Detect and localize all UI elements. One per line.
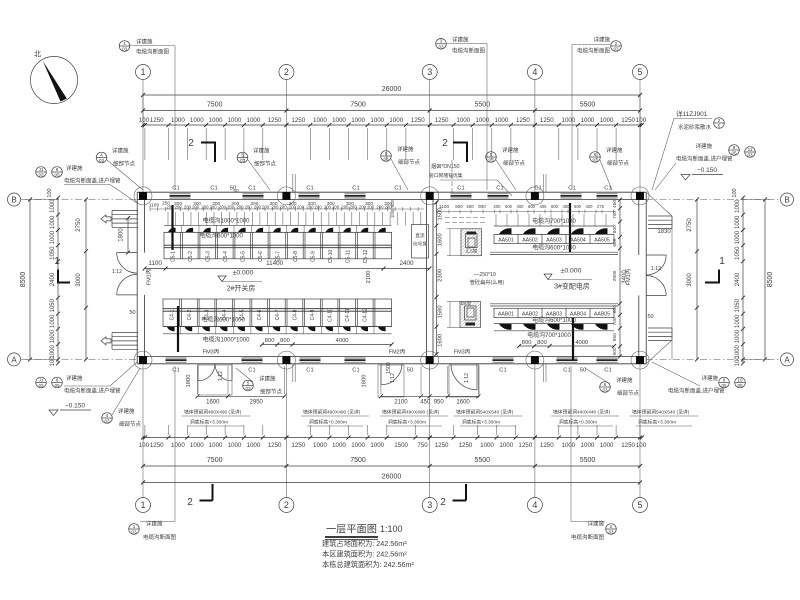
svg-text:1000: 1000: [495, 117, 509, 124]
svg-text:细部节点: 细部节点: [113, 160, 136, 168]
svg-text:烟囱*DN150: 烟囱*DN150: [431, 162, 460, 170]
svg-text:7500: 7500: [350, 102, 366, 109]
svg-text:C5-11: C5-11: [345, 250, 351, 263]
svg-text:洞底标高+3.300m: 洞底标高+3.300m: [462, 419, 500, 426]
svg-text:1: 1: [140, 67, 145, 77]
svg-text:建筑占地面积为: 242.56m²: 建筑占地面积为: 242.56m²: [322, 539, 407, 548]
svg-text:C1: C1: [248, 368, 255, 374]
svg-text:03: 03: [438, 44, 444, 49]
svg-text:05: 05: [737, 383, 743, 388]
svg-text:600: 600: [528, 204, 536, 209]
svg-text:1250: 1250: [518, 442, 532, 449]
svg-text:7500: 7500: [350, 457, 366, 464]
svg-text:详建施: 详建施: [695, 142, 712, 150]
svg-text:2900: 2900: [612, 270, 618, 281]
svg-text:1000: 1000: [581, 117, 595, 124]
svg-text:03: 03: [38, 383, 44, 388]
svg-text:05: 05: [54, 173, 60, 178]
svg-text:800: 800: [522, 340, 532, 346]
svg-text:电缆沟600*1000: 电缆沟600*1000: [532, 316, 576, 324]
svg-text:北: 北: [34, 50, 41, 58]
svg-text:1: 1: [54, 256, 60, 267]
svg-text:1:100: 1:100: [380, 524, 403, 534]
svg-text:200 200: 200 200: [289, 204, 305, 209]
svg-text:950: 950: [612, 333, 618, 341]
svg-text:电缆沟1000*1000: 电缆沟1000*1000: [202, 336, 250, 344]
svg-text:电缆沟断面图: 电缆沟断面图: [452, 47, 486, 55]
svg-text:2: 2: [284, 67, 289, 77]
svg-text:AA502: AA502: [522, 237, 538, 243]
svg-text:5500: 5500: [580, 457, 596, 464]
svg-text:1000: 1000: [247, 117, 261, 124]
svg-text:电缆沟700*1000: 电缆沟700*1000: [532, 217, 576, 225]
svg-text:电缆沟断面盖,进户埋管: 电缆沟断面盖,进户埋管: [668, 387, 725, 395]
svg-text:1000: 1000: [332, 117, 346, 124]
svg-text:2300: 2300: [438, 269, 444, 282]
svg-text:200 200: 200 200: [306, 204, 322, 209]
svg-text:2: 2: [440, 497, 446, 508]
svg-text:200 200: 200 200: [219, 204, 235, 209]
svg-text:4000: 4000: [575, 340, 588, 346]
svg-text:C4-6: C4-6: [257, 309, 263, 320]
svg-text:1250: 1250: [411, 117, 425, 124]
svg-text:详建施: 详建施: [701, 374, 718, 382]
svg-text:1800: 1800: [186, 375, 192, 388]
svg-text:C1: C1: [499, 368, 506, 374]
svg-text:5: 5: [637, 67, 642, 77]
svg-text:AAB01: AAB01: [498, 311, 514, 317]
svg-text:1000: 1000: [190, 117, 204, 124]
svg-text:1000: 1000: [209, 117, 223, 124]
svg-text:3: 3: [440, 39, 443, 44]
svg-text:5: 5: [490, 152, 493, 157]
svg-text:电缆沟1000*1000: 电缆沟1000*1000: [202, 217, 250, 225]
svg-text:C1: C1: [563, 368, 570, 374]
svg-text:1250: 1250: [268, 442, 282, 449]
svg-text:1:12: 1:12: [218, 371, 224, 381]
svg-text:1000: 1000: [735, 199, 741, 213]
svg-text:1600: 1600: [206, 400, 220, 406]
svg-text:5: 5: [241, 152, 244, 157]
svg-text:2100: 2100: [394, 400, 408, 406]
svg-text:C1: C1: [496, 186, 503, 192]
svg-text:C5-9: C5-9: [310, 251, 316, 262]
svg-text:细部节点: 细部节点: [503, 159, 526, 167]
svg-text:8: 8: [56, 377, 59, 382]
svg-text:4: 4: [532, 500, 537, 510]
svg-text:3400: 3400: [622, 270, 628, 284]
svg-text:一层平面图: 一层平面图: [326, 524, 377, 536]
svg-text:7500: 7500: [207, 457, 223, 464]
svg-text:水泥砂浆散水: 水泥砂浆散水: [678, 123, 712, 131]
svg-text:本栋总建筑面积为: 242.56m²: 本栋总建筑面积为: 242.56m²: [322, 560, 414, 569]
svg-text:C1: C1: [534, 186, 541, 192]
svg-text:1600: 1600: [438, 233, 444, 246]
svg-text:详11ZJ901: 详11ZJ901: [676, 109, 708, 118]
svg-text:FM3丙: FM3丙: [454, 349, 471, 356]
svg-text:细部节点: 细部节点: [119, 420, 142, 428]
svg-text:J1: J1: [39, 377, 44, 382]
svg-text:细部节点: 细部节点: [260, 388, 283, 396]
svg-text:电缆沟600*1000: 电缆沟600*1000: [201, 316, 245, 324]
svg-text:1:12: 1:12: [464, 373, 470, 383]
svg-text:B: B: [784, 195, 789, 204]
svg-text:1000: 1000: [171, 117, 185, 124]
svg-text:2400: 2400: [399, 260, 414, 267]
svg-text:1000: 1000: [600, 442, 614, 449]
svg-text:C5-6: C5-6: [258, 251, 264, 262]
svg-text:电缆沟600*1000: 电缆沟600*1000: [532, 243, 576, 251]
svg-text:C5-12: C5-12: [363, 249, 369, 263]
svg-text:03: 03: [131, 530, 137, 535]
svg-text:电缆沟断面图: 电缆沟断面图: [143, 533, 177, 541]
svg-text:AAB03: AAB03: [546, 311, 562, 317]
svg-text:900: 900: [478, 204, 486, 209]
svg-text:03: 03: [608, 530, 614, 535]
svg-text:AA505: AA505: [594, 237, 610, 243]
svg-text:450: 450: [420, 400, 431, 406]
svg-text:1250: 1250: [540, 117, 554, 124]
svg-text:03: 03: [602, 388, 608, 393]
svg-text:5500: 5500: [580, 102, 596, 109]
svg-text:600: 600: [551, 204, 559, 209]
svg-text:2950: 2950: [250, 400, 264, 406]
svg-text:100: 100: [50, 356, 56, 367]
svg-text:1000: 1000: [50, 215, 56, 229]
svg-text:1100: 1100: [149, 203, 160, 209]
svg-text:详建施: 详建施: [616, 376, 633, 384]
svg-text:细部节点: 细部节点: [617, 389, 640, 397]
svg-text:200 200: 200 200: [271, 204, 287, 209]
svg-text:3: 3: [427, 500, 432, 510]
svg-text:1000: 1000: [351, 117, 365, 124]
svg-text:详建施: 详建施: [66, 164, 83, 172]
svg-text:C4-7: C4-7: [275, 309, 281, 320]
svg-text:100: 100: [139, 442, 150, 449]
svg-text:9: 9: [723, 377, 726, 382]
svg-text:3000: 3000: [76, 273, 82, 287]
svg-text:1000: 1000: [389, 117, 403, 124]
svg-text:洞底标高+0.300m: 洞底标高+0.300m: [559, 419, 597, 426]
svg-text:03: 03: [104, 419, 110, 424]
svg-text:11: 11: [748, 147, 753, 152]
svg-text:1000: 1000: [562, 442, 576, 449]
svg-text:AA503: AA503: [546, 237, 562, 243]
svg-text:100: 100: [47, 188, 53, 197]
svg-text:200: 200: [494, 204, 502, 209]
svg-text:1250: 1250: [435, 442, 449, 449]
svg-text:1580: 1580: [438, 305, 444, 318]
svg-text:C1: C1: [248, 186, 255, 192]
svg-text:墙体预留洞440X440 (见详): 墙体预留洞440X440 (见详): [553, 409, 611, 416]
svg-text:B: B: [11, 195, 16, 204]
svg-text:1000: 1000: [50, 230, 56, 244]
svg-text:700: 700: [612, 317, 618, 325]
svg-text:−0.150: −0.150: [697, 167, 717, 174]
svg-text:03: 03: [383, 157, 389, 162]
svg-text:墙体预留洞540X540 (见详): 墙体预留洞540X540 (见详): [456, 409, 514, 416]
svg-text:4: 4: [100, 152, 103, 157]
svg-text:1250: 1250: [268, 117, 282, 124]
svg-text:50: 50: [407, 368, 413, 374]
svg-text:100: 100: [139, 117, 150, 124]
svg-text:C4-9: C4-9: [310, 309, 316, 320]
svg-text:1600: 1600: [438, 334, 444, 347]
svg-text:1000: 1000: [370, 442, 384, 449]
svg-text:C4-11: C4-11: [345, 308, 351, 321]
svg-text:墙体预留洞540X540 (见详): 墙体预留洞540X540 (见详): [632, 409, 690, 416]
svg-text:200 200: 200 200: [236, 204, 252, 209]
svg-text:03: 03: [245, 386, 251, 391]
svg-text:直流: 直流: [415, 232, 425, 239]
svg-text:200 200: 200 200: [359, 204, 375, 209]
svg-text:1830: 1830: [657, 229, 671, 235]
svg-text:26000: 26000: [382, 86, 402, 93]
svg-text:细部节点: 细部节点: [607, 159, 630, 167]
svg-text:详建施: 详建施: [146, 520, 163, 528]
svg-text:8500: 8500: [767, 272, 774, 288]
svg-text:1000*800: 1000*800: [390, 199, 395, 218]
svg-text:1000: 1000: [228, 442, 242, 449]
svg-text:03: 03: [122, 47, 128, 52]
svg-text:1:12: 1:12: [651, 266, 661, 272]
svg-text:03: 03: [99, 158, 105, 163]
svg-text:FM2丙: FM2丙: [389, 349, 406, 356]
svg-text:±0.000: ±0.000: [233, 270, 254, 277]
svg-text:5: 5: [247, 380, 250, 385]
svg-text:100: 100: [636, 442, 647, 449]
svg-text:AA501: AA501: [498, 237, 514, 243]
svg-text:详建施: 详建施: [452, 36, 469, 44]
svg-text:11400: 11400: [266, 260, 284, 267]
svg-text:50: 50: [129, 310, 135, 316]
svg-text:C5-3: C5-3: [205, 251, 211, 262]
svg-text:管砼扁舟(么用): 管砼扁舟(么用): [470, 278, 505, 286]
svg-text:电缆沟断面图: 电缆沟断面图: [136, 48, 170, 56]
svg-text:墙体预留洞490X490 (见详): 墙体预留洞490X490 (见详): [382, 409, 440, 416]
svg-text:电缆沟600*1000: 电缆沟600*1000: [199, 231, 243, 239]
svg-text:800: 800: [612, 225, 618, 233]
svg-text:3000: 3000: [687, 273, 693, 287]
svg-text:2: 2: [187, 497, 193, 508]
svg-text:200 200: 200 200: [201, 204, 217, 209]
svg-text:1: 1: [719, 256, 725, 267]
svg-text:400: 400: [466, 204, 474, 209]
svg-text:墙体预留洞490X490 (见详): 墙体预留洞490X490 (见详): [303, 409, 361, 416]
svg-text:±0.000: ±0.000: [561, 268, 582, 275]
svg-text:6: 6: [594, 152, 597, 157]
svg-text:950: 950: [434, 400, 445, 406]
svg-text:1050: 1050: [735, 298, 741, 312]
svg-text:C5-8: C5-8: [293, 251, 299, 262]
svg-text:800: 800: [537, 340, 547, 346]
svg-text:5500: 5500: [475, 457, 491, 464]
svg-text:600: 600: [612, 305, 618, 313]
svg-text:信号屏: 信号屏: [413, 241, 427, 248]
svg-text:500: 500: [612, 347, 618, 355]
svg-text:03: 03: [747, 153, 753, 158]
svg-text:1000: 1000: [600, 117, 614, 124]
svg-text:1250: 1250: [621, 442, 635, 449]
svg-text:1050: 1050: [735, 246, 741, 260]
svg-text:C4-1: C4-1: [169, 309, 175, 320]
svg-text:1000: 1000: [480, 442, 494, 449]
svg-text:200 200: 200 200: [341, 204, 357, 209]
svg-text:1250: 1250: [435, 117, 449, 124]
svg-text:1000: 1000: [475, 117, 489, 124]
svg-text:2100: 2100: [366, 271, 372, 284]
svg-text:2: 2: [442, 138, 448, 149]
svg-text:750: 750: [417, 442, 428, 449]
svg-text:C1: C1: [604, 368, 611, 374]
svg-text:FM1丙: FM1丙: [146, 268, 153, 285]
svg-text:5500: 5500: [475, 102, 491, 109]
svg-text:洞底标高+3.300m: 洞底标高+3.300m: [388, 419, 426, 426]
svg-text:墙体预留洞490X490 (见详): 墙体预留洞490X490 (见详): [184, 409, 242, 416]
svg-text:详建施: 详建施: [118, 407, 135, 415]
svg-text:电缆沟断面盖,进户埋管: 电缆沟断面盖,进户埋管: [64, 387, 121, 395]
svg-text:C5-2: C5-2: [188, 251, 194, 262]
svg-text:3: 3: [427, 67, 432, 77]
svg-text:100: 100: [732, 188, 738, 197]
svg-text:1000: 1000: [209, 442, 223, 449]
svg-text:600: 600: [574, 204, 582, 209]
svg-text:1: 1: [140, 500, 145, 510]
svg-text:1000: 1000: [735, 329, 741, 343]
svg-text:8: 8: [56, 167, 59, 172]
svg-text:1000: 1000: [499, 442, 513, 449]
svg-text:5: 5: [718, 124, 721, 129]
svg-text:电缆沟断面图: 电缆沟断面图: [571, 533, 605, 541]
svg-text:03: 03: [592, 158, 598, 163]
svg-text:1000: 1000: [370, 117, 384, 124]
svg-text:5: 5: [385, 151, 388, 156]
svg-text:1250: 1250: [621, 117, 635, 124]
svg-text:600: 600: [612, 238, 618, 246]
svg-text:详建施: 详建施: [112, 147, 129, 155]
svg-text:1000: 1000: [313, 442, 327, 449]
svg-text:600: 600: [505, 204, 513, 209]
svg-text:1:12: 1:12: [112, 269, 122, 275]
svg-text:详建施: 详建施: [259, 375, 276, 383]
svg-text:3#变配电房: 3#变配电房: [554, 282, 590, 291]
svg-text:2: 2: [718, 118, 721, 123]
svg-text:100: 100: [636, 117, 647, 124]
svg-text:电缆沟700*1000: 电缆沟700*1000: [527, 331, 571, 339]
svg-text:1050: 1050: [50, 298, 56, 312]
svg-text:C1: C1: [306, 368, 313, 374]
svg-text:汇5架: 汇5架: [466, 248, 478, 255]
svg-text:10: 10: [737, 377, 743, 382]
svg-text:1250: 1250: [291, 117, 305, 124]
svg-text:—250*10: —250*10: [474, 272, 496, 278]
svg-text:1100: 1100: [148, 260, 162, 267]
svg-text:4: 4: [106, 413, 109, 418]
svg-text:A: A: [784, 355, 790, 364]
svg-text:200 200: 200 200: [184, 204, 200, 209]
svg-text:C4-8: C4-8: [292, 309, 298, 320]
svg-text:电缆沟断面图: 电缆沟断面图: [577, 47, 611, 55]
svg-text:管口砌堵锚优集: 管口砌堵锚优集: [429, 172, 463, 179]
svg-text:400: 400: [586, 204, 594, 209]
svg-text:450: 450: [612, 200, 618, 208]
svg-text:C5-4: C5-4: [223, 251, 229, 262]
svg-text:C1: C1: [210, 186, 217, 192]
svg-text:50: 50: [647, 314, 653, 320]
svg-text:400: 400: [517, 204, 525, 209]
svg-text:详建施: 详建施: [593, 36, 610, 44]
svg-text:2400: 2400: [735, 272, 741, 286]
svg-text:C1: C1: [172, 368, 179, 374]
svg-text:4: 4: [532, 67, 537, 77]
svg-text:AAB02: AAB02: [522, 311, 538, 317]
svg-text:−0.150: −0.150: [65, 403, 85, 410]
svg-text:FM3丙: FM3丙: [203, 349, 220, 356]
svg-text:1500: 1500: [394, 442, 408, 449]
svg-text:200 200: 200 200: [324, 204, 340, 209]
svg-text:AA504: AA504: [570, 237, 586, 243]
svg-text:1250: 1250: [540, 442, 554, 449]
svg-text:03: 03: [240, 158, 246, 163]
svg-text:1000: 1000: [50, 329, 56, 343]
svg-text:200 200: 200 200: [254, 204, 270, 209]
svg-text:详建施: 详建施: [502, 146, 519, 154]
svg-text:800: 800: [265, 338, 275, 344]
svg-text:1500: 1500: [438, 208, 444, 221]
svg-text:7500: 7500: [207, 102, 223, 109]
svg-text:C1: C1: [306, 186, 313, 192]
svg-text:本区建筑面积为: 242.56m²: 本区建筑面积为: 242.56m²: [322, 550, 407, 559]
svg-text:1000: 1000: [50, 314, 56, 328]
svg-text:1000: 1000: [562, 117, 576, 124]
svg-text:1250: 1250: [150, 442, 164, 449]
svg-text:电缆沟断面盖,进户埋管: 电缆沟断面盖,进户埋管: [676, 155, 733, 163]
svg-text:1: 1: [123, 41, 126, 46]
svg-text:详建施: 详建施: [587, 520, 604, 528]
svg-text:800: 800: [280, 338, 290, 344]
svg-text:1000: 1000: [581, 442, 595, 449]
svg-text:洞底标高+3.300m: 洞底标高+3.300m: [638, 419, 676, 426]
svg-text:详建施: 详建施: [606, 146, 623, 154]
svg-text:03: 03: [613, 47, 619, 52]
svg-text:8: 8: [733, 145, 736, 150]
svg-text:2: 2: [188, 138, 194, 149]
svg-text:细部节点: 细部节点: [254, 160, 277, 168]
svg-text:03: 03: [488, 158, 494, 163]
svg-text:C1: C1: [352, 186, 359, 192]
svg-text:03: 03: [38, 173, 44, 178]
svg-text:275: 275: [597, 204, 605, 209]
svg-text:详建施: 详建施: [136, 38, 153, 46]
svg-text:详建施: 详建施: [66, 374, 83, 382]
svg-text:1250: 1250: [459, 442, 473, 449]
svg-text:C1: C1: [172, 186, 179, 192]
svg-text:详建施: 详建施: [397, 145, 414, 153]
svg-text:详建施: 详建施: [253, 147, 270, 155]
svg-text:400: 400: [540, 204, 548, 209]
svg-text:1600: 1600: [456, 400, 470, 406]
svg-text:C4-10: C4-10: [328, 308, 334, 322]
svg-text:2: 2: [284, 500, 289, 510]
svg-text:C5-1: C5-1: [170, 251, 176, 262]
svg-text:26000: 26000: [382, 474, 402, 481]
svg-text:5: 5: [637, 500, 642, 510]
svg-text:2: 2: [615, 41, 618, 46]
svg-text:1000: 1000: [735, 230, 741, 244]
svg-text:1250: 1250: [291, 442, 305, 449]
svg-text:洞底标高+0.300m: 洞底标高+0.300m: [309, 419, 347, 426]
svg-text:4000: 4000: [336, 338, 349, 344]
